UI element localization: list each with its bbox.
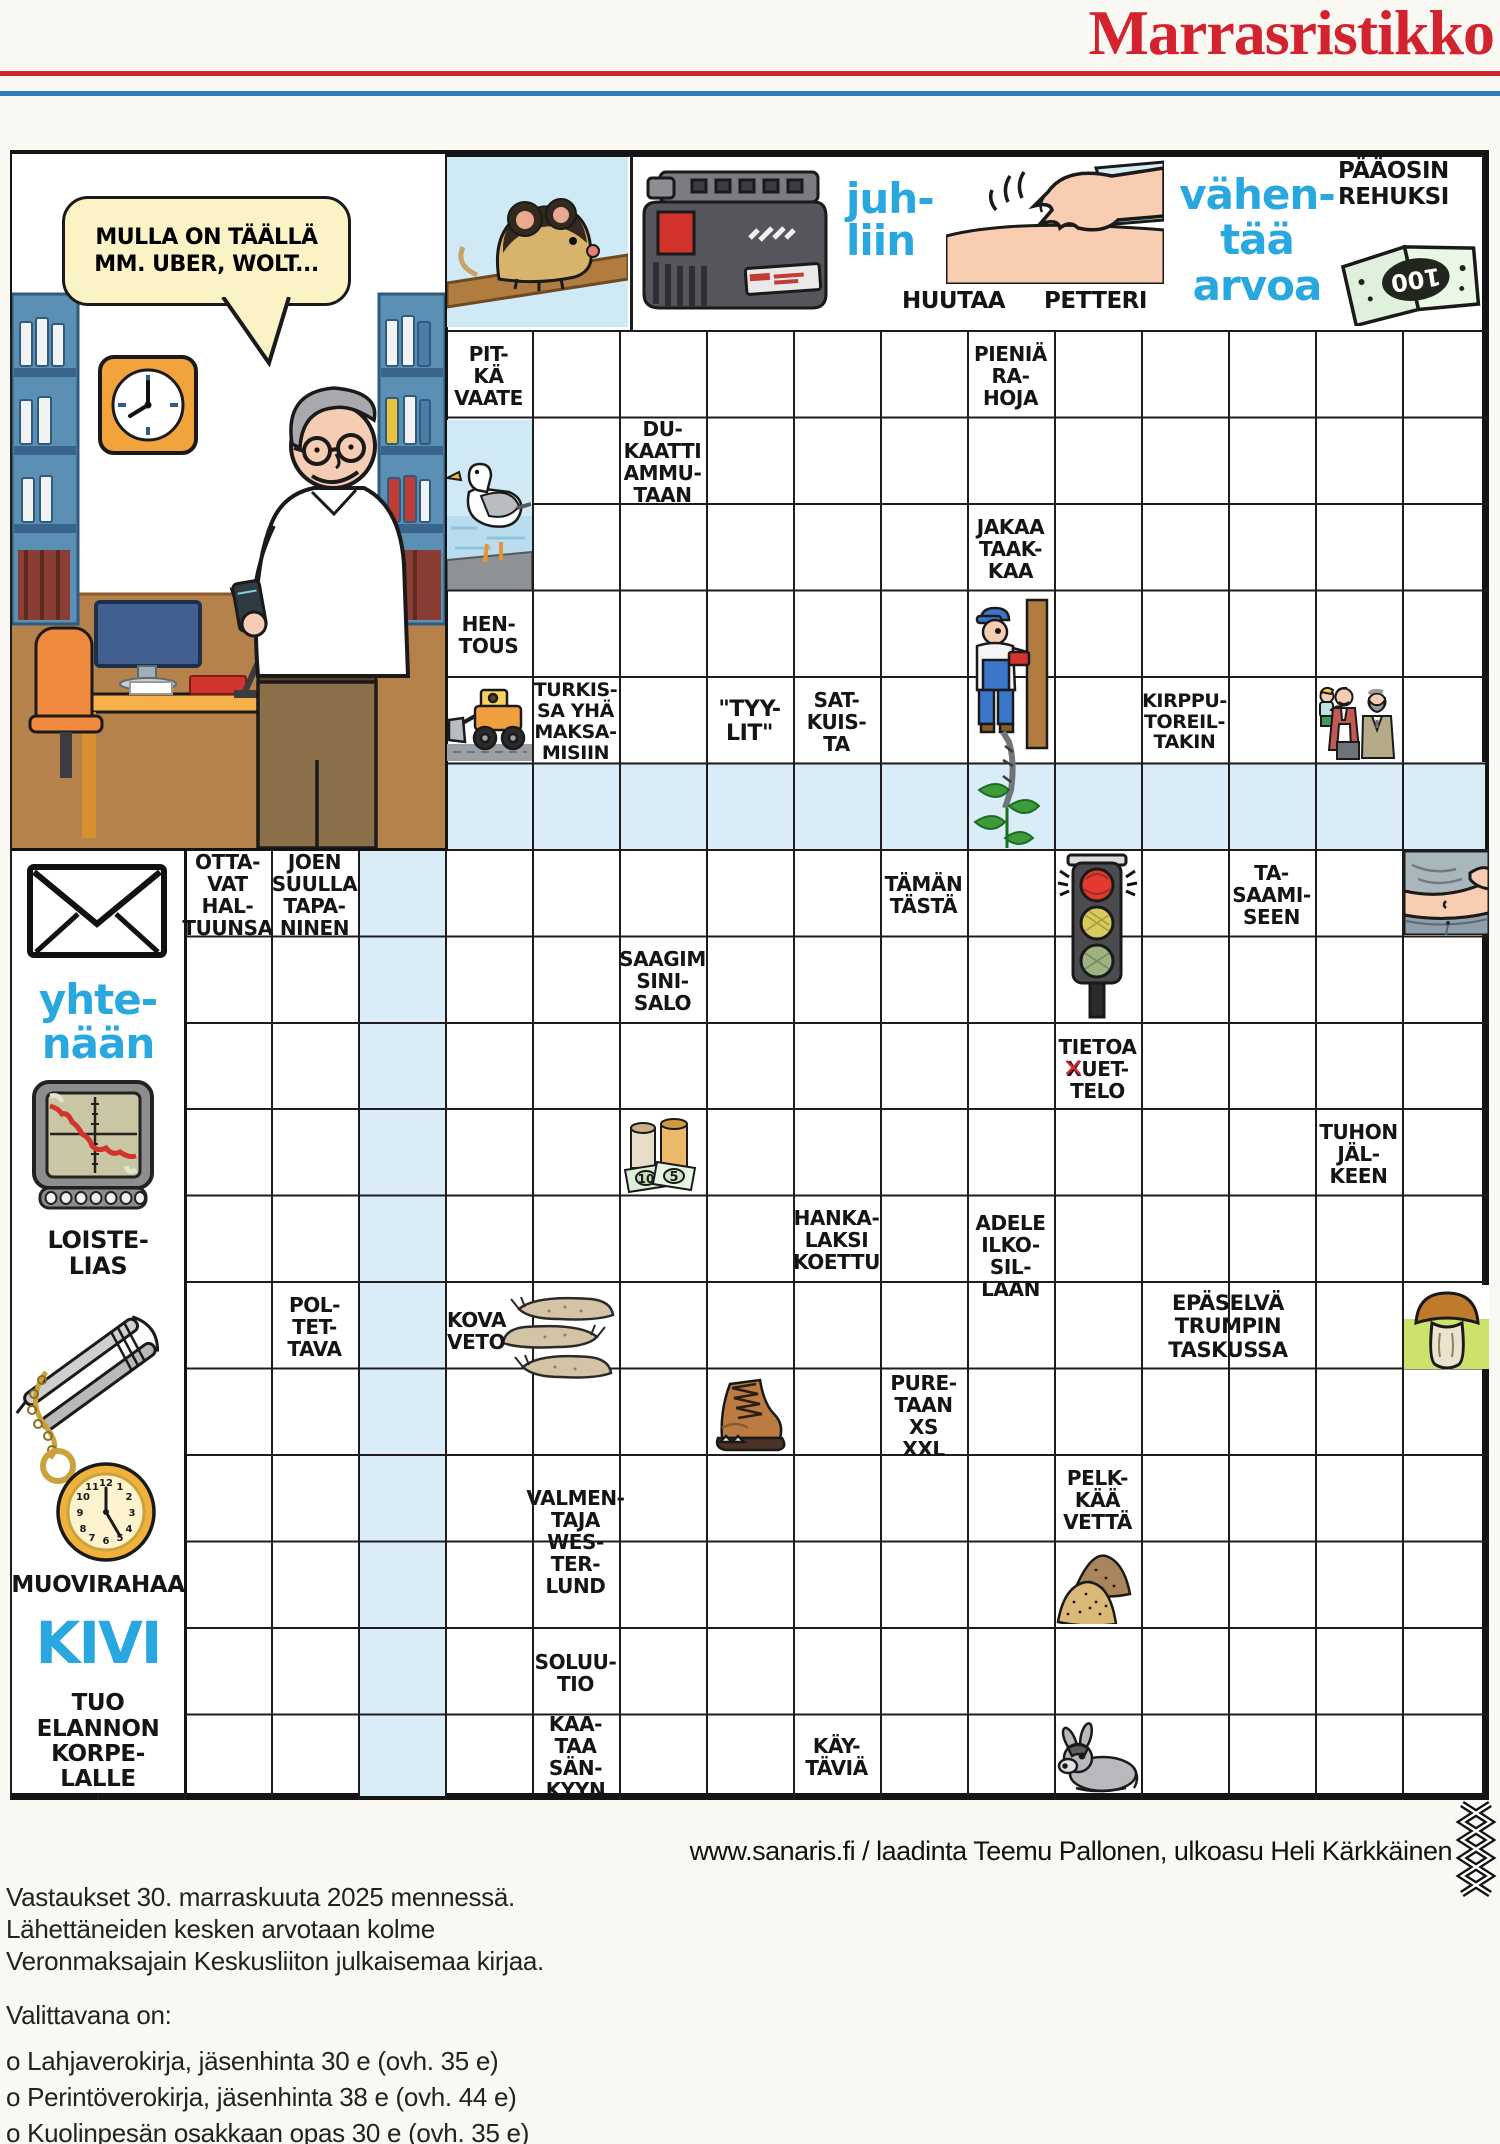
clue-adele: ADELE ILKO- SIL- LAAN [967, 1202, 1054, 1310]
declining-chart-device-illustration [32, 1080, 154, 1212]
blue-clue-kivi: KIVI [12, 1614, 184, 1672]
clue-pienia-rahoja: PIENIÄ RA- HOJA [967, 334, 1054, 418]
page-title: Marrasristikko [1089, 0, 1495, 70]
envelope-illustration [26, 862, 168, 960]
footer-book-option-2: o Perintöverokirja, jäsenhinta 38 e (ovh… [6, 2082, 517, 2113]
hundred-banknote-illustration: 100 [1338, 236, 1488, 326]
clue-ottavat-haltuunsa: OTTA- VAT HAL- TUUNSA [184, 851, 271, 939]
footer-book-option-1: o Lahjaverokirja, jäsenhinta 30 e (ovh. … [6, 2046, 498, 2077]
clue-tyylit: "TYY- LIT" [706, 680, 793, 764]
sanaris-logo-icon [1454, 1794, 1498, 1898]
clue-kaytavia: KÄY- TÄVIÄ [793, 1715, 880, 1799]
label-paaosin-rehuksi: PÄÄOSIN REHUKSI [1338, 158, 1449, 211]
worker-with-drill-and-plant-illustration [969, 594, 1052, 848]
svg-text:3: 3 [129, 1508, 136, 1519]
clue-valmentaja: VALMEN- TAJA WES- TER- LUND [532, 1458, 619, 1626]
sand-piles-illustration [1056, 1544, 1139, 1624]
crossed-letter: X [1066, 1058, 1081, 1080]
clue-dukaatti: DU- KAATTI AMMU- TAAN [619, 420, 706, 504]
svg-text:4: 4 [126, 1524, 133, 1535]
svg-text:10: 10 [638, 1172, 655, 1186]
footer-options-heading: Valittavana on: [6, 2000, 172, 2031]
clue-kaataa-sankyyn: KAA- TAA SÄN- KYYN [532, 1715, 619, 1799]
bare-belly-illustration [1404, 851, 1489, 935]
footer-raffle-2: Veronmaksajain Keskusliiton julkaisemaa … [6, 1946, 544, 1977]
clue-jakaa-taakkaa: JAKAA TAAK- KAA [967, 507, 1054, 591]
clue-turkissa: TURKIS- SA YHÄ MAKSA- MISIIN [532, 680, 619, 764]
magazine-crossword-page: Marrasristikko [0, 0, 1500, 2144]
mouse-on-plank-illustration [447, 157, 628, 327]
svg-text:1: 1 [117, 1482, 124, 1493]
clue-satkuista: SAT- KUIS- TA [793, 680, 880, 764]
clue-hankalaksi: HANKA- LAKSI KOETTU [793, 1198, 880, 1282]
blue-divider-line [0, 91, 1500, 96]
speech-bubble-tail [205, 297, 295, 369]
worn-boot-illustration [708, 1372, 791, 1454]
svg-text:2: 2 [126, 1492, 133, 1503]
seagull-on-shore-illustration [447, 420, 532, 590]
footer-raffle-1: Lähettäneiden kesken arvotaan kolme [6, 1914, 435, 1945]
clue-tuhon-jalkeen: TUHON JÄL- KEEN [1315, 1112, 1402, 1196]
clue-poltettava: POL- TET- TAVA [271, 1285, 358, 1369]
bookshelf-left [12, 294, 78, 624]
clue-epaselva: EPÄSELVÄ TRUMPIN TASKUSSA [1141, 1285, 1315, 1369]
coin-rolls-and-banknotes-illustration: 10 5 [621, 1112, 704, 1194]
blue-clue-vahentaa-arvoa: vähen- tää arvoa [1178, 172, 1336, 308]
clue-muovirahaa: MUOVIRAHAA [12, 1572, 184, 1600]
clue-kirpputoreiltakin: KIRPPU- TOREIL- TAKIN [1141, 680, 1228, 764]
label-petteri: PETTERI [1044, 288, 1147, 314]
man-with-child-and-grandfather-illustration [1317, 680, 1400, 761]
svg-text:7: 7 [89, 1533, 96, 1544]
label-huutaa: HUUTAA [902, 288, 1005, 314]
blue-clue-yhtenaan: yhte- nään [14, 978, 182, 1066]
svg-text:9: 9 [77, 1508, 84, 1519]
wheel-loader-illustration [447, 680, 532, 761]
clue-taman-tasta: TÄMÄN TÄSTÄ [880, 853, 967, 937]
clue-saagim: SAAGIM SINI- SALO [619, 939, 706, 1023]
clue-hentous: HEN- TOUS [445, 593, 532, 677]
clue-joen-suulla: JOEN SUULLA TAPA- NINEN [271, 851, 358, 939]
clue-pitka-vaate: PIT- KÄ VAATE [445, 334, 532, 418]
pocket-watch-illustration: 12369 1245 781011 [18, 1366, 176, 1566]
clue-soluutio: SOLUU- TIO [532, 1631, 619, 1715]
donkey-illustration [1056, 1716, 1139, 1796]
porcini-mushroom-illustration [1404, 1285, 1489, 1369]
clue-pelkkaa-vetta: PELK- KÄÄ VETTÄ [1054, 1458, 1141, 1542]
top-strip-divider [630, 157, 633, 330]
svg-text:11: 11 [85, 1482, 99, 1493]
hand-patting-shoulder-illustration [946, 158, 1164, 284]
svg-text:10: 10 [76, 1492, 90, 1503]
clue-ta-saamiseen: TA- SAAMI- SEEN [1228, 853, 1315, 937]
speech-bubble: MULLA ON TÄÄLLÄ MM. UBER, WOLT... [62, 196, 351, 306]
svg-text:5: 5 [669, 1170, 678, 1185]
clue-tietoa-luettelo: TIETOA XUET- TELO [1054, 1026, 1141, 1112]
traffic-light-illustration [1056, 853, 1139, 1021]
footer-deadline: Vastaukset 30. marraskuuta 2025 mennessä… [6, 1882, 515, 1913]
footer-book-option-3: o Kuolinpesän osakkaan opas 30 e (ovh. 3… [6, 2118, 529, 2144]
power-tool-battery-illustration [634, 158, 834, 324]
clue-tuo-elannon: TUO ELANNON KORPE- LALLE [12, 1688, 184, 1796]
credits-line: www.sanaris.fi / laadinta Teemu Pallonen… [380, 1836, 1452, 1867]
red-divider-line [0, 71, 1500, 76]
clue-loistelias: LOISTE- LIAS [12, 1218, 184, 1288]
wall-clock-icon [100, 357, 196, 453]
clue-puretaan: PURE- TAAN XS XXL [880, 1374, 967, 1458]
clue-kova-veto: KOVA VETO [447, 1300, 525, 1362]
svg-text:8: 8 [80, 1524, 87, 1535]
svg-text:6: 6 [103, 1536, 110, 1547]
blue-clue-juhliin: juh- liin [846, 178, 958, 262]
